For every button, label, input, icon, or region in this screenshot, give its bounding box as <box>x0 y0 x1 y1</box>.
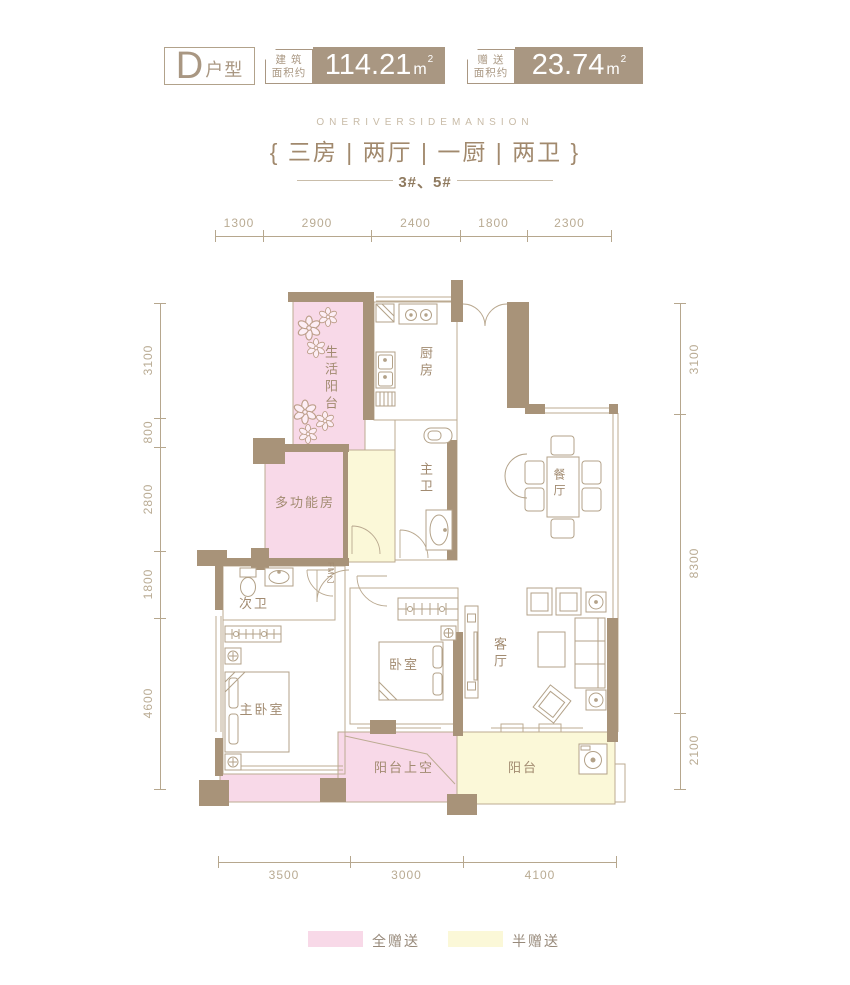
room-label-life-balcony: 生活阳台 <box>321 345 340 413</box>
room-label-master-bedroom: 主卧室 <box>228 699 296 718</box>
room-label-balcony: 阳台 <box>497 757 549 776</box>
built-area-unit: m <box>413 53 426 79</box>
built-area-sup: 2 <box>428 54 434 65</box>
dim-label: 2300 <box>527 216 612 230</box>
dim-left: 3100 800 2800 1800 4600 <box>143 303 173 790</box>
built-area-label-bottom: 面积约 <box>272 67 307 80</box>
dim-top: 1300 2900 2400 1800 2300 <box>215 216 612 242</box>
built-area-label: 建 筑 面积约 <box>265 49 313 84</box>
building-numbers: 3#、5# <box>0 171 850 192</box>
gift-area-sup: 2 <box>621 54 627 65</box>
dim-label: 4600 <box>141 675 155 731</box>
built-area-number: 114.21 <box>325 49 412 82</box>
master-bedroom-furniture <box>225 626 289 770</box>
room-label-balcony-void: 阳台上空 <box>362 757 446 776</box>
gift-area-badge: 赠 送 面积约 23.74 m 2 <box>467 47 643 84</box>
dim-label: 3500 <box>218 868 350 882</box>
dim-label: 1800 <box>460 216 527 230</box>
room-label-kitchen: 厨房 <box>416 346 435 380</box>
washing-machine <box>579 744 607 774</box>
dim-label: 3000 <box>350 868 463 882</box>
dim-label: 4100 <box>463 868 617 882</box>
legend-label-full-gift: 全赠送 <box>372 931 420 951</box>
room-label-living: 客厅 <box>490 637 509 671</box>
built-area-value: 114.21 m 2 <box>313 47 445 84</box>
dim-label: 2800 <box>141 471 155 527</box>
project-english-name: ONERIVERSIDEMANSION <box>0 117 850 128</box>
built-area-label-top: 建 筑 <box>276 54 303 67</box>
dim-label: 800 <box>141 404 155 460</box>
room-label-multi-function: 多功能房 <box>262 492 348 511</box>
legend-swatch-full-gift <box>308 931 363 947</box>
room-label-second-bath: 次卫 <box>226 593 282 612</box>
gift-area-label: 赠 送 面积约 <box>467 49 515 84</box>
bedroom-furniture <box>379 598 458 700</box>
room-label-bedroom: 卧室 <box>372 654 436 673</box>
unit-letter: D <box>176 49 203 83</box>
dim-label: 1800 <box>141 556 155 612</box>
dim-label: 8300 <box>687 535 701 591</box>
gift-area-unit: m <box>606 53 619 79</box>
divider-line-right <box>457 180 553 181</box>
unit-type-box: D 户型 <box>164 47 255 85</box>
dim-label: 1300 <box>215 216 263 230</box>
built-area-badge: 建 筑 面积约 114.21 m 2 <box>265 47 445 84</box>
room-label-dining: 餐厅 <box>551 468 568 500</box>
legend-label-half-gift: 半赠送 <box>512 931 560 951</box>
dim-label: 2900 <box>263 216 371 230</box>
dim-right: 3100 8300 2100 <box>667 303 703 790</box>
floorplan-page: D 户型 建 筑 面积约 114.21 m 2 赠 送 面积约 23.74 m … <box>0 0 850 985</box>
dim-label: 2400 <box>371 216 460 230</box>
dim-label: 3100 <box>687 331 701 387</box>
legend-swatch-half-gift <box>448 931 503 947</box>
rooms-spec: { 三房 | 两厅 | 一厨 | 两卫 } <box>0 133 850 167</box>
room-label-master-bath: 主卫 <box>416 462 435 496</box>
fire-door-label: FM乙 <box>325 562 336 585</box>
dim-bottom: 3500 3000 4100 <box>218 855 617 885</box>
unit-suffix: 户型 <box>205 50 243 82</box>
gift-area-label-top: 赠 送 <box>478 54 505 67</box>
gift-area-value: 23.74 m 2 <box>515 47 643 84</box>
gift-area-label-bottom: 面积约 <box>474 67 509 80</box>
gift-area-number: 23.74 <box>532 49 605 82</box>
dim-label: 3100 <box>141 332 155 388</box>
living-room-furniture <box>465 588 606 723</box>
dim-label: 2100 <box>687 722 701 778</box>
